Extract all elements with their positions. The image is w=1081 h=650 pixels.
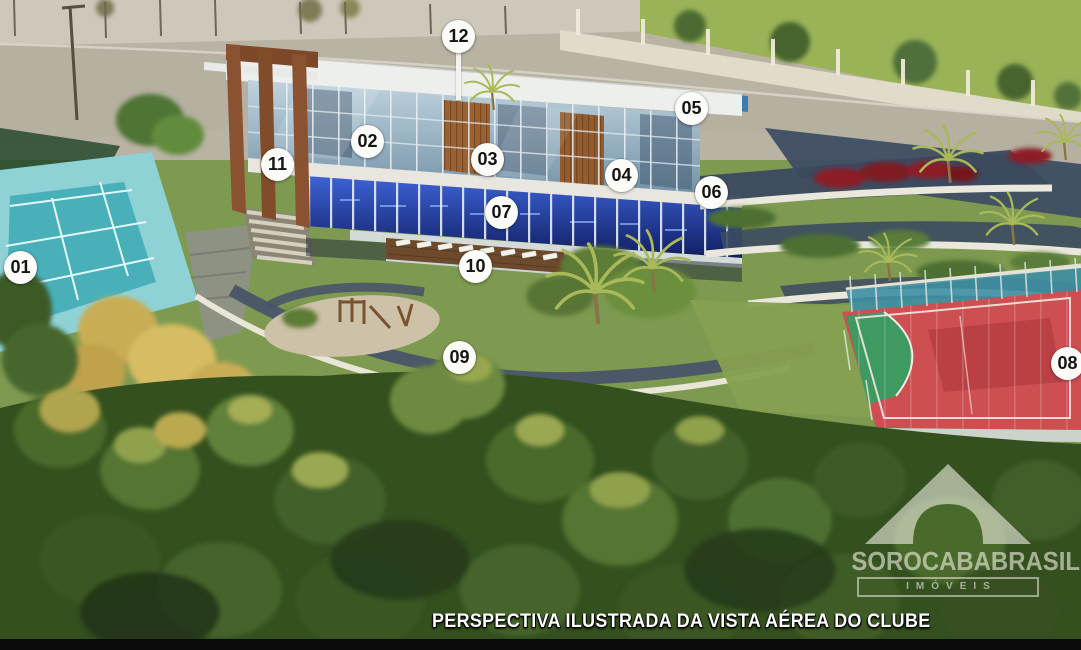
bottom-bar bbox=[0, 639, 1081, 650]
watermark-logo: SOROCABABRASIL IMÓVEIS bbox=[843, 462, 1053, 597]
feature-marker-05: 05 bbox=[675, 92, 708, 125]
caption: PERSPECTIVA ILUSTRADA DA VISTA AÉREA DO … bbox=[432, 611, 931, 634]
feature-marker-02: 02 bbox=[351, 125, 384, 158]
feature-marker-12: 12 bbox=[442, 20, 475, 53]
feature-marker-03: 03 bbox=[471, 143, 504, 176]
feature-marker-10: 10 bbox=[459, 250, 492, 283]
watermark-tagline-text: IMÓVEIS bbox=[857, 577, 1039, 597]
marker-stem bbox=[456, 48, 461, 100]
feature-marker-09: 09 bbox=[443, 341, 476, 374]
feature-marker-11: 11 bbox=[261, 148, 294, 181]
lamp-arm bbox=[62, 6, 85, 8]
feature-marker-08: 08 bbox=[1051, 347, 1081, 380]
feature-marker-01: 01 bbox=[4, 251, 37, 284]
feature-marker-06: 06 bbox=[695, 176, 728, 209]
brand-triangle-icon bbox=[863, 462, 1033, 546]
feature-marker-07: 07 bbox=[485, 196, 518, 229]
sports-court bbox=[842, 258, 1081, 442]
aerial-rendering: 010203040506070809101112 SOROCABABRASIL … bbox=[0, 0, 1081, 650]
feature-marker-04: 04 bbox=[605, 159, 638, 192]
watermark-brand-text: SOROCABABRASIL bbox=[851, 548, 1044, 574]
